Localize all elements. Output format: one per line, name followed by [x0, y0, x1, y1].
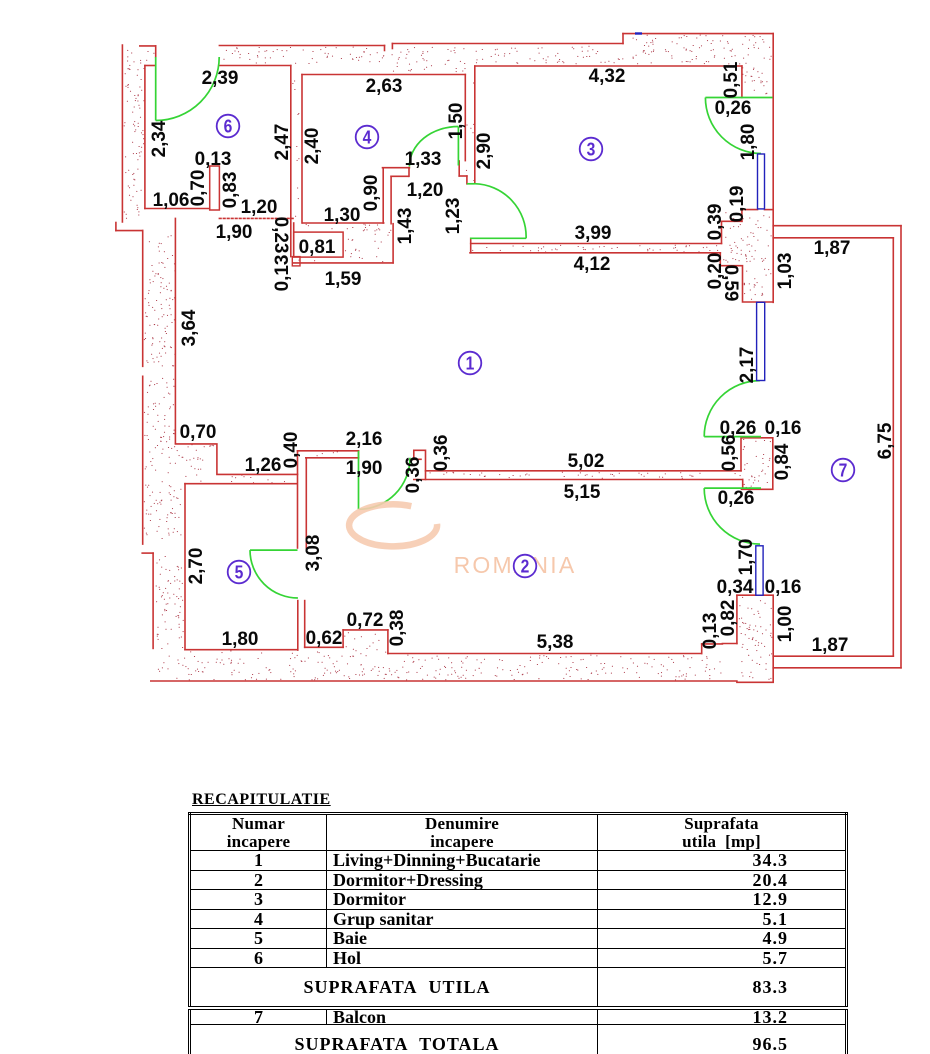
- svg-text:1,50: 1,50: [445, 102, 467, 139]
- svg-text:0,56: 0,56: [718, 434, 740, 471]
- svg-text:0,34: 0,34: [717, 576, 754, 598]
- svg-text:0,16: 0,16: [765, 576, 802, 598]
- svg-text:3: 3: [587, 140, 596, 160]
- svg-text:2,70: 2,70: [185, 547, 207, 584]
- svg-text:1,59: 1,59: [325, 268, 362, 290]
- svg-text:6: 6: [224, 117, 233, 137]
- svg-text:1,03: 1,03: [774, 252, 796, 289]
- svg-text:0,83: 0,83: [219, 171, 241, 208]
- svg-text:1,70: 1,70: [735, 538, 757, 575]
- svg-text:0,62: 0,62: [306, 627, 343, 649]
- svg-text:1,00: 1,00: [774, 605, 796, 642]
- svg-text:2,40: 2,40: [301, 127, 323, 164]
- svg-text:1,33: 1,33: [405, 148, 442, 170]
- svg-text:0,26: 0,26: [715, 97, 752, 119]
- svg-text:0,51: 0,51: [720, 61, 742, 98]
- svg-text:2,34: 2,34: [148, 120, 170, 157]
- svg-text:0,26: 0,26: [718, 487, 755, 509]
- svg-text:1,30: 1,30: [324, 204, 361, 226]
- svg-text:2,47: 2,47: [271, 124, 293, 161]
- svg-text:1,80: 1,80: [737, 123, 759, 160]
- svg-text:1,90: 1,90: [346, 457, 383, 479]
- svg-text:1,20: 1,20: [241, 196, 278, 218]
- svg-text:0,13: 0,13: [271, 254, 293, 291]
- svg-text:3,64: 3,64: [178, 309, 200, 346]
- svg-text:0,39: 0,39: [704, 203, 726, 240]
- svg-text:5,15: 5,15: [564, 481, 601, 503]
- svg-text:5,38: 5,38: [537, 631, 574, 653]
- svg-text:3,08: 3,08: [302, 534, 324, 571]
- svg-text:1: 1: [466, 354, 475, 374]
- svg-text:2,90: 2,90: [473, 132, 495, 169]
- svg-text:0,13: 0,13: [195, 148, 232, 170]
- svg-text:0,90: 0,90: [360, 174, 382, 211]
- svg-text:0,84: 0,84: [771, 443, 793, 480]
- svg-text:2,63: 2,63: [366, 75, 403, 97]
- svg-text:4,32: 4,32: [589, 65, 626, 87]
- svg-text:1,90: 1,90: [216, 221, 253, 243]
- svg-text:1,87: 1,87: [812, 634, 849, 656]
- svg-text:0,81: 0,81: [299, 236, 336, 258]
- svg-text:0,16: 0,16: [765, 417, 802, 439]
- svg-text:0,19: 0,19: [726, 185, 748, 222]
- svg-text:0,70: 0,70: [180, 421, 217, 443]
- svg-text:5: 5: [235, 563, 244, 583]
- svg-text:2,16: 2,16: [346, 428, 383, 450]
- svg-text:2,17: 2,17: [736, 347, 758, 384]
- svg-text:1,87: 1,87: [814, 237, 851, 259]
- svg-text:0,23: 0,23: [270, 217, 292, 254]
- svg-text:0,40: 0,40: [280, 431, 302, 468]
- svg-text:4,12: 4,12: [574, 253, 611, 275]
- svg-text:1,43: 1,43: [394, 207, 416, 244]
- svg-text:0,82: 0,82: [717, 599, 739, 636]
- svg-text:0,72: 0,72: [347, 609, 384, 631]
- svg-text:1,80: 1,80: [222, 628, 259, 650]
- svg-text:1,06: 1,06: [153, 189, 190, 211]
- svg-text:0,59: 0,59: [720, 265, 742, 302]
- svg-text:5,02: 5,02: [568, 450, 605, 472]
- svg-text:6,75: 6,75: [874, 422, 896, 459]
- svg-text:0,36: 0,36: [430, 434, 452, 471]
- svg-text:3,99: 3,99: [575, 222, 612, 244]
- svg-text:1,26: 1,26: [245, 454, 282, 476]
- svg-text:7: 7: [839, 461, 848, 481]
- svg-text:4: 4: [363, 128, 372, 148]
- svg-text:0,36: 0,36: [402, 456, 424, 493]
- svg-text:0,70: 0,70: [187, 169, 209, 206]
- svg-text:0,38: 0,38: [386, 609, 408, 646]
- svg-text:2: 2: [521, 557, 530, 577]
- svg-text:1,23: 1,23: [442, 197, 464, 234]
- svg-text:1,20: 1,20: [407, 179, 444, 201]
- svg-text:2,39: 2,39: [202, 67, 239, 89]
